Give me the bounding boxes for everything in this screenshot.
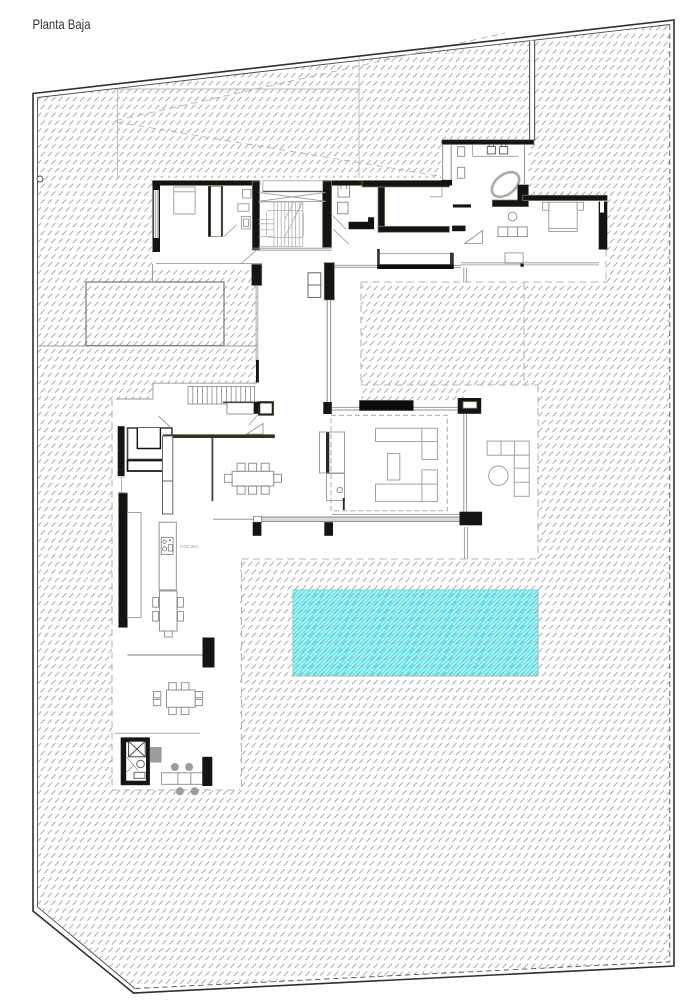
svg-text:Planta Baja: Planta Baja (33, 16, 91, 32)
svg-text:COCINA: COCINA (180, 544, 199, 549)
